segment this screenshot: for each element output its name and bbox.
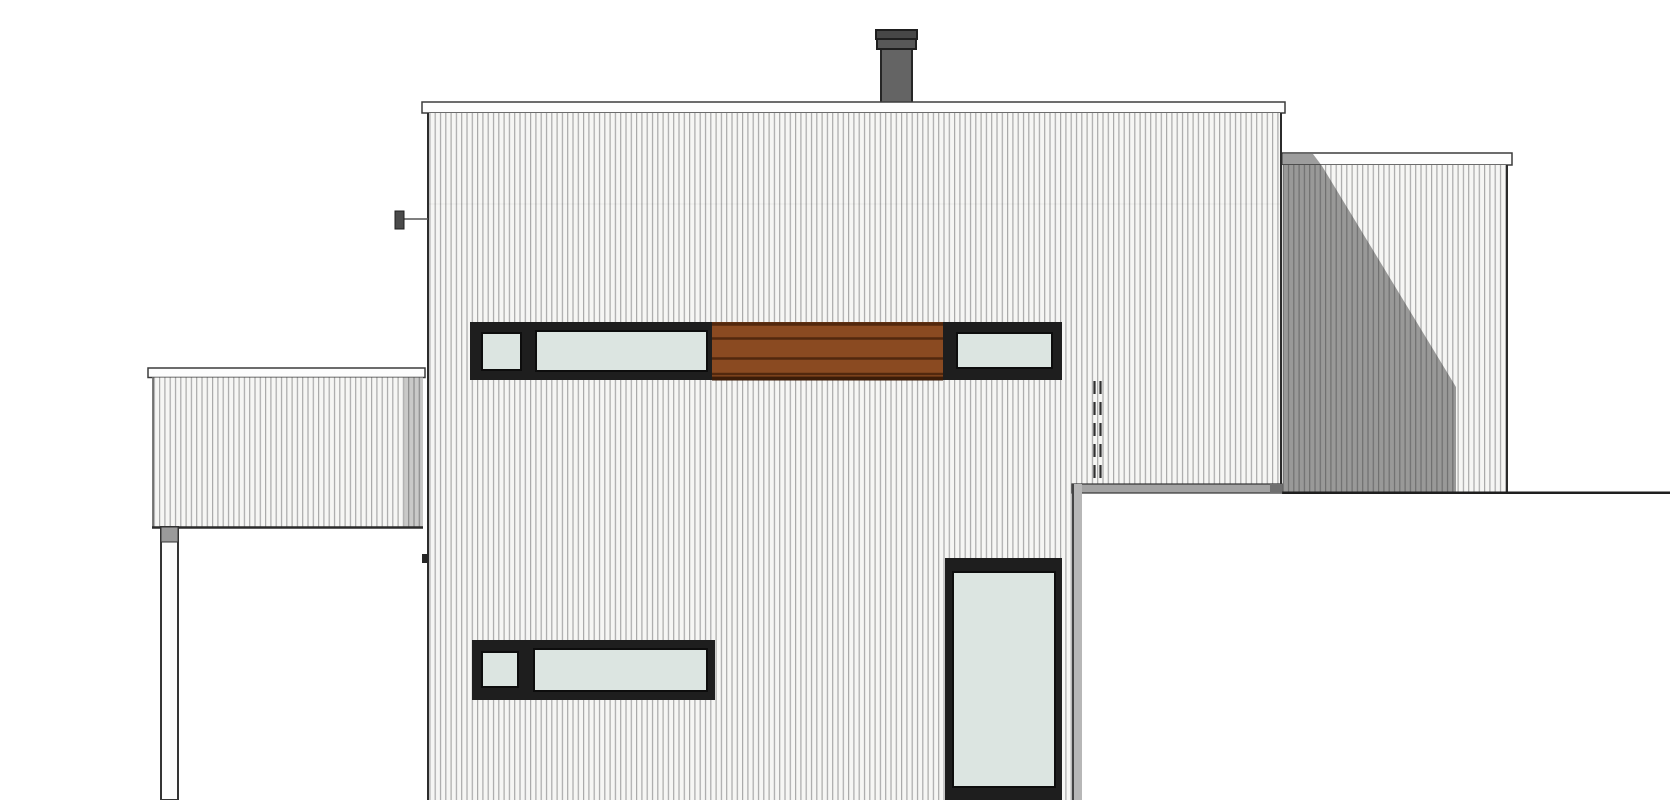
foreground-block-roof-band xyxy=(1072,484,1282,493)
upper-window-band xyxy=(470,322,1062,380)
carport-post xyxy=(161,527,178,800)
lower-long-window-glass xyxy=(534,649,707,691)
foreground-block-face xyxy=(1072,493,1670,800)
upper-long-window-glass xyxy=(536,331,707,371)
carport-post-cap xyxy=(161,527,178,542)
foreground-block xyxy=(1072,484,1670,800)
upper-right-window-glass xyxy=(957,333,1052,368)
chimney-body xyxy=(881,48,912,105)
tall-window xyxy=(945,558,1062,800)
lower-small-window-glass xyxy=(482,652,518,687)
wall-lamp-icon xyxy=(395,211,404,229)
tall-window-glass xyxy=(953,572,1055,787)
left-wing-fascia xyxy=(148,368,425,378)
right-wing xyxy=(1282,153,1512,493)
elevation-drawing-canvas xyxy=(0,0,1670,800)
wood-slat-panel xyxy=(712,322,943,380)
chimney-collar xyxy=(877,39,916,49)
left-wing-shadow-strip xyxy=(404,378,423,528)
foreground-block-roof-corner xyxy=(1270,484,1282,493)
house-elevation-svg xyxy=(0,0,1670,800)
main-roof-fascia xyxy=(422,102,1285,113)
lower-window-band xyxy=(472,640,715,700)
left-wing-siding xyxy=(152,378,423,528)
chimney-cap xyxy=(876,30,917,39)
wall-fixture-dot xyxy=(422,554,428,563)
chimney xyxy=(876,30,917,105)
wood-panel-base xyxy=(712,322,943,380)
upper-small-window-glass xyxy=(482,333,521,370)
